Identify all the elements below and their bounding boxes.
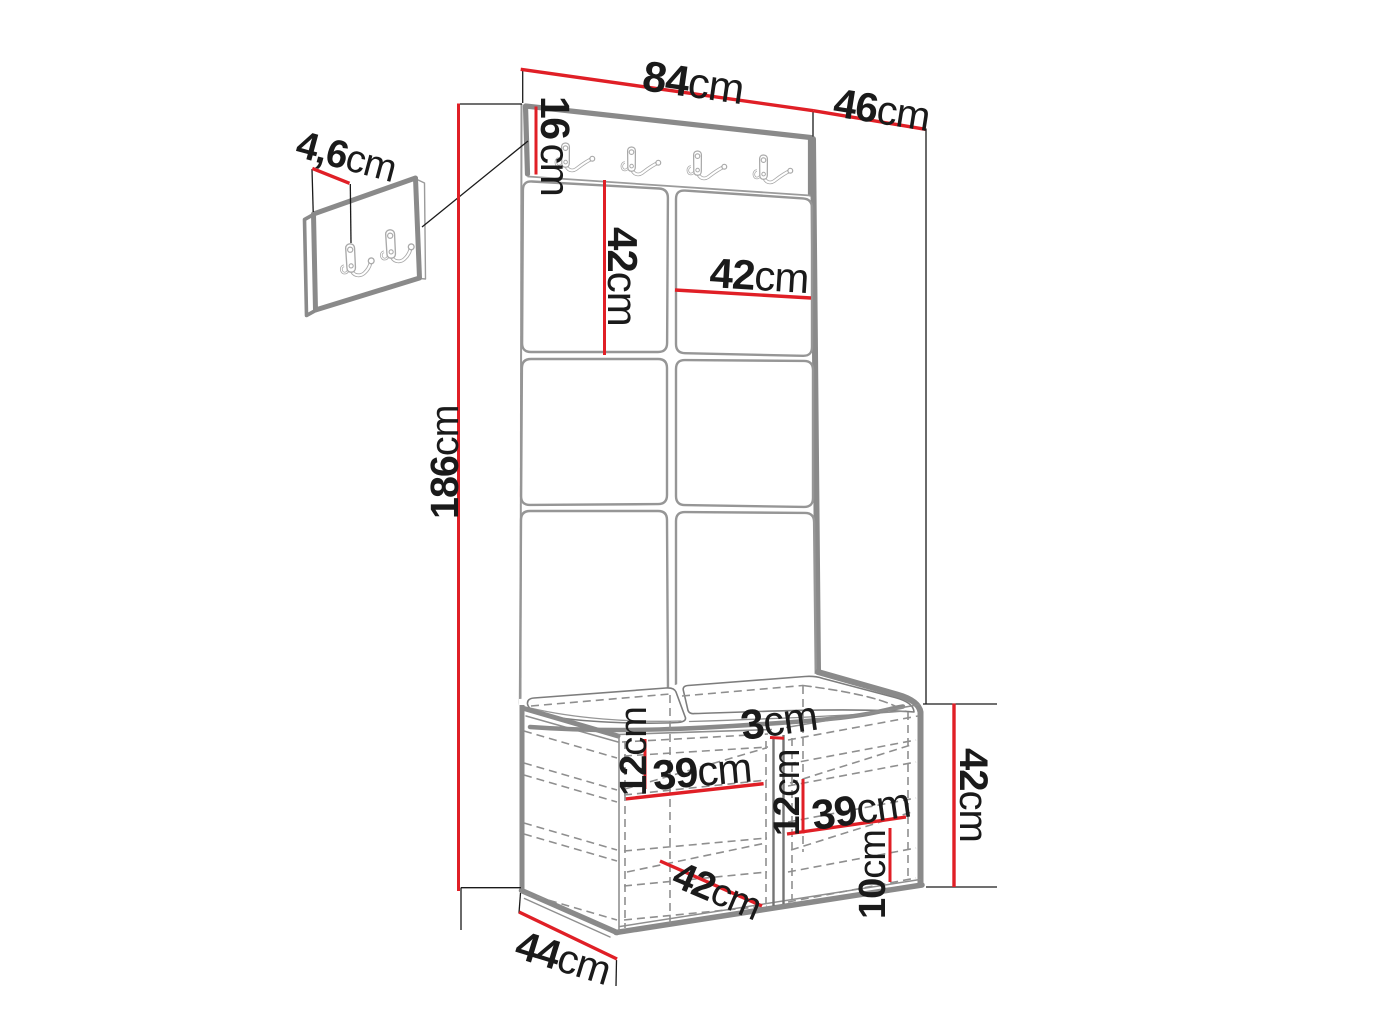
svg-text:12cm: 12cm	[766, 750, 807, 836]
svg-text:39cm: 39cm	[651, 744, 753, 799]
svg-text:12cm: 12cm	[613, 707, 655, 796]
svg-text:42cm: 42cm	[708, 249, 809, 302]
svg-text:10cm: 10cm	[852, 830, 894, 919]
svg-text:186cm: 186cm	[423, 405, 467, 519]
svg-text:16cm: 16cm	[532, 96, 578, 195]
svg-text:42cm: 42cm	[951, 748, 995, 842]
svg-text:42cm: 42cm	[599, 227, 646, 326]
